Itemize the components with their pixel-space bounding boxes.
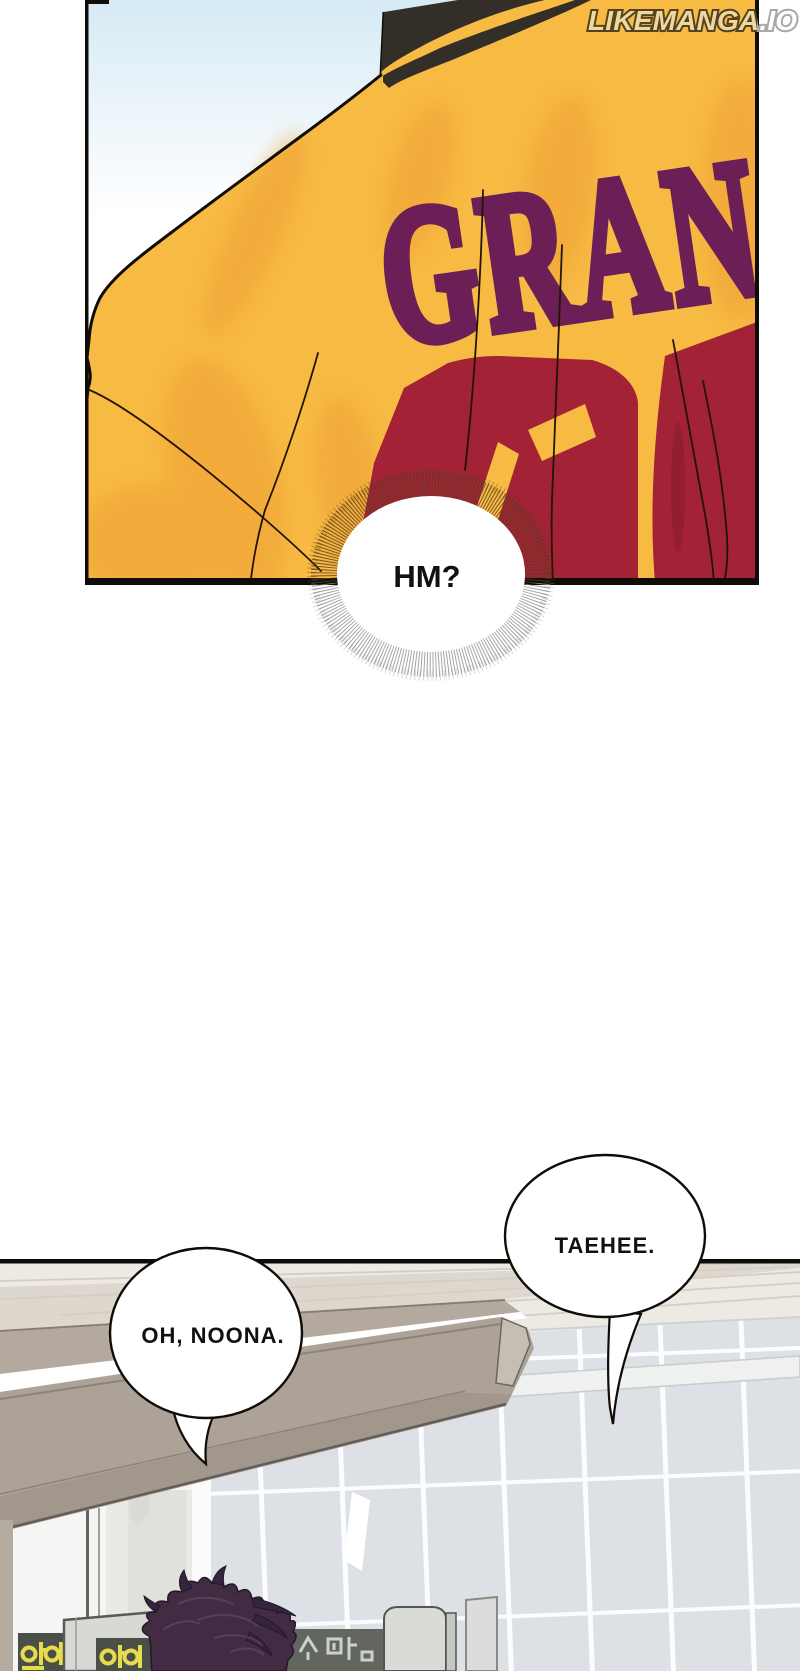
svg-text:OH, NOONA.: OH, NOONA.	[141, 1323, 284, 1348]
svg-text:TAEHEE.: TAEHEE.	[555, 1233, 656, 1258]
svg-text:HM?: HM?	[393, 559, 460, 594]
